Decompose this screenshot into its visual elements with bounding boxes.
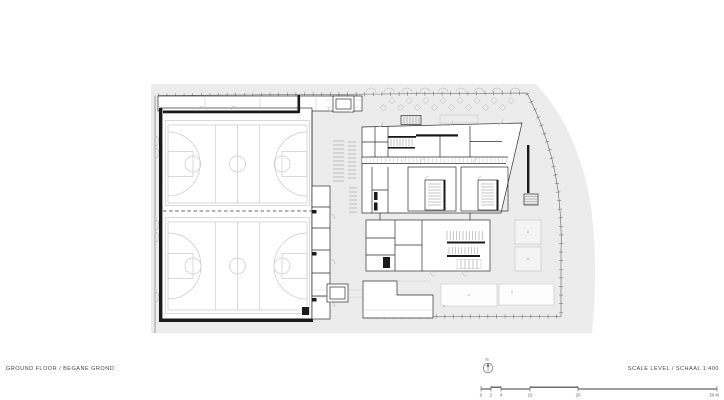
play-court-2: [499, 284, 554, 305]
scale-tick-2: 2: [490, 393, 493, 398]
freestanding-wall: [527, 145, 529, 193]
hall-west-wall: [159, 108, 162, 322]
scale-tick-20: 20: [576, 393, 581, 398]
north-arrow-icon: N: [483, 357, 493, 373]
hall-south-wall: [159, 319, 313, 323]
north-label: N: [485, 357, 488, 362]
hall-south-annex: [302, 307, 309, 315]
scale-tick-4: 4: [500, 393, 503, 398]
drawing-title: GROUND FLOOR / BEGANE GROND: [6, 366, 114, 372]
lower-block: [366, 220, 490, 271]
hall-northeast-wall: [298, 95, 301, 113]
scale-tick-50: 50 M: [709, 393, 719, 398]
scale-tick-10: 10: [528, 393, 533, 398]
scale-tick-0: 0: [480, 393, 483, 398]
drawing-sheet: N 0 2 4 10 20 50 M GROUND FLOOR / BEGANE…: [0, 0, 724, 400]
scale-bar: 0 2 4 10 20 50 M: [480, 386, 720, 398]
scale-level-label: SCALE LEVEL / SCHAAL 1:400: [628, 366, 719, 372]
hall-volume: [160, 108, 312, 319]
floor-plan-drawing: N 0 2 4 10 20 50 M: [0, 0, 724, 400]
